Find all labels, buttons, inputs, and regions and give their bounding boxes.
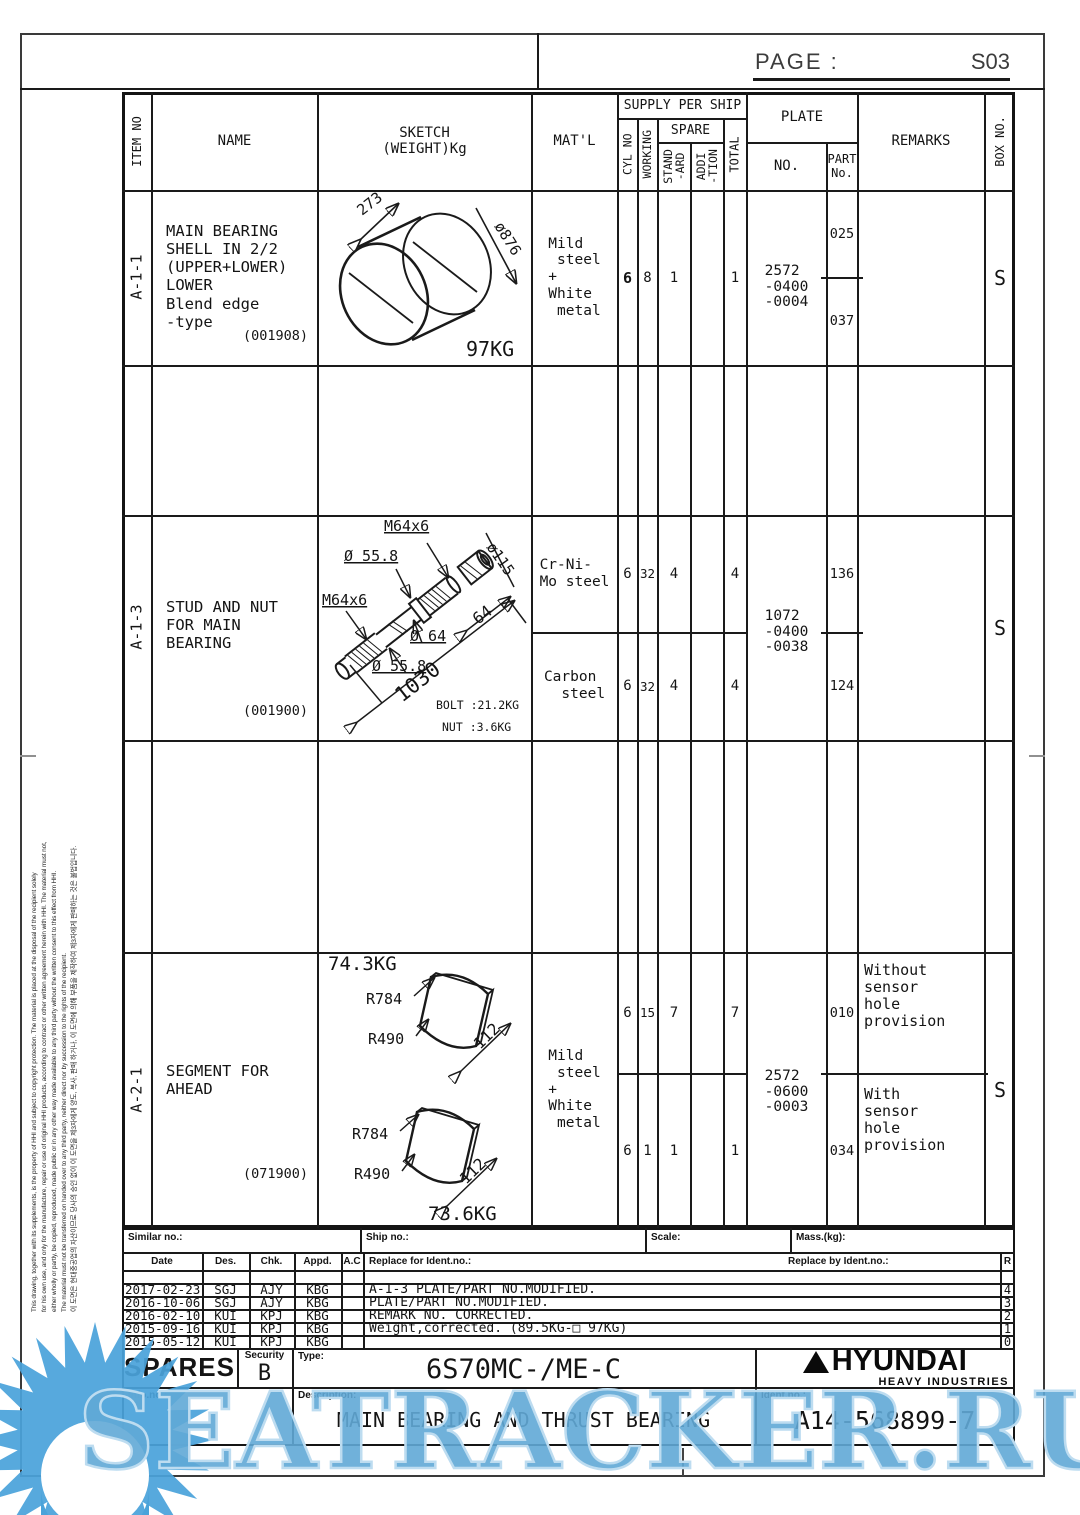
plate-no-a-1-1: 2572 -0400 -0004 [747, 200, 826, 375]
rev-row-r: 1 [1000, 1322, 1015, 1335]
svg-text:112: 112 [456, 1154, 490, 1188]
part-no-a-1-1-bottom: 037 [827, 277, 857, 365]
cyl-no-a-2-1-top: 6 [618, 952, 637, 1073]
plate-no-a-2-1: 2572 -0600 -0003 [747, 1005, 826, 1180]
cyl-no-a-1-3-top: 6 [618, 515, 637, 632]
part-no-a-2-1-top: 010 [827, 952, 857, 1073]
sketch-stud-and-nut: M64x6 Ø 55.8 M64x6 Ø 64 Ø 55.8 ø115 64 1… [318, 515, 531, 740]
working-a-2-1-bottom: 1 [638, 1073, 657, 1228]
standard-a-1-3-bottom: 4 [658, 632, 690, 740]
col-header-part-no: PART No. [827, 142, 857, 190]
remarks-a-2-1-bottom: With sensor hole provision [864, 1086, 982, 1196]
svg-text:Ø 55.8: Ø 55.8 [344, 547, 398, 565]
matl-a-1-3-bottom: Carbon steel [532, 632, 617, 740]
sketch-segment-for-ahead: 74.3KG R784 R490 112 R784 R490 112 73.6K… [318, 952, 531, 1228]
code-a-1-1: (001908) [196, 328, 308, 346]
mass-label: Mass.(kg): [796, 1232, 845, 1243]
similar-no-label: Similar no.: [128, 1232, 182, 1243]
col-header-plate: PLATE [747, 92, 857, 142]
part-no-a-1-3-bottom: 124 [827, 632, 857, 740]
col-header-working: WORKING [638, 118, 657, 190]
box-no-a-1-1: S [985, 190, 1015, 365]
grid-line [20, 88, 1045, 90]
part-no-a-1-3-top: 136 [827, 515, 857, 632]
svg-text:Ø 64: Ø 64 [410, 627, 446, 645]
plate-no-a-1-3: 1072 -0400 -0038 [747, 545, 826, 720]
total-a-2-1-top: 7 [724, 952, 746, 1073]
box-no-a-1-3: S [985, 515, 1015, 740]
name-a-2-1: SEGMENT FOR AHEAD [166, 1062, 316, 1106]
rev-header-replace-for: Replace for Ident.no.: [369, 1252, 669, 1270]
matl-a-1-3-top: Cr-Ni- Mo steel [532, 515, 617, 632]
svg-text:R784: R784 [352, 1125, 388, 1143]
grid-line [122, 365, 1015, 367]
total-a-2-1-bottom: 1 [724, 1073, 746, 1228]
page-number: S03 [920, 46, 1010, 78]
rev-row-r: 2 [1000, 1309, 1015, 1322]
grid-line [645, 1228, 647, 1252]
grid-line [537, 33, 539, 90]
svg-text:M64x6: M64x6 [322, 591, 367, 609]
rev-header-r: R [1000, 1252, 1015, 1270]
svg-text:ø876: ø876 [491, 219, 525, 259]
col-header-supply-per-ship: SUPPLY PER SHIP [618, 92, 747, 118]
part-no-a-1-1-top: 025 [827, 190, 857, 277]
sketch-main-bearing-shell: 273 ø876 97KG [318, 190, 531, 365]
svg-text:97KG: 97KG [466, 337, 514, 361]
matl-a-2-1: Mild steel + White metal [532, 952, 617, 1228]
total-a-1-1: 1 [724, 190, 746, 365]
grid-line [690, 142, 692, 1228]
col-header-addition: ADDI -TION [691, 142, 723, 190]
standard-a-1-1: 1 [658, 190, 690, 365]
col-header-spare: SPARE [658, 118, 723, 142]
svg-text:M64x6: M64x6 [384, 517, 429, 535]
svg-text:73.6KG: 73.6KG [428, 1203, 497, 1225]
col-header-item-no: ITEM NO [122, 92, 152, 190]
total-a-1-3-bottom: 4 [724, 632, 746, 740]
rev-row-text: Weight,corrected. (89.5KG-□ 97KG) [369, 1322, 989, 1335]
grid-line [360, 1228, 362, 1252]
grid-line [363, 1252, 365, 1348]
svg-text:BOLT :21.2KG: BOLT :21.2KG [436, 698, 519, 712]
col-header-matl: MAT'L [532, 92, 617, 190]
svg-text:74.3KG: 74.3KG [328, 953, 397, 975]
cyl-no-a-2-1-bottom: 6 [618, 1073, 637, 1228]
working-a-1-1: 8 [638, 190, 657, 365]
box-no-a-2-1: S [985, 952, 1015, 1228]
col-header-total: TOTAL [724, 118, 746, 190]
working-a-1-3-bottom: 32 [638, 632, 657, 740]
col-header-remarks: REMARKS [858, 92, 984, 190]
center-mark [1029, 755, 1045, 757]
col-header-cyl-no: CYL NO [618, 118, 637, 190]
standard-a-2-1-top: 7 [658, 952, 690, 1073]
svg-text:112: 112 [470, 1019, 504, 1053]
matl-a-1-1: Mild steel + White metal [532, 190, 617, 365]
rev-row-chk: KPJ [249, 1335, 294, 1348]
col-header-standard: STAND -ARD [658, 142, 690, 190]
copyright-disclaimer: This drawing, together with its suppleme… [30, 750, 80, 1312]
svg-text:R490: R490 [354, 1165, 390, 1183]
rev-row-r: 3 [1000, 1296, 1015, 1309]
grid-line [790, 1228, 792, 1252]
item-no-a-2-1: A-2-1 [122, 952, 152, 1228]
rev-header-appd: Appd. [294, 1252, 341, 1270]
code-a-2-1: (071900) [196, 1166, 308, 1184]
total-a-1-3-top: 4 [724, 515, 746, 632]
rev-row-appd: KBG [294, 1335, 341, 1348]
drawing-sheet: PAGE : S03 ITEM NO NAME SKETCH (WEIGHT)K… [0, 0, 1080, 1515]
scale-label: Scale: [651, 1232, 680, 1243]
rev-row-r: 4 [1000, 1283, 1015, 1296]
cyl-no-a-1-1: 6 [618, 190, 637, 365]
svg-text:R784: R784 [366, 990, 402, 1008]
item-no-a-1-3: A-1-3 [122, 515, 152, 740]
name-a-1-3: STUD AND NUT FOR MAIN BEARING [166, 598, 316, 660]
svg-text:64: 64 [469, 601, 496, 628]
code-a-1-3: (001900) [196, 703, 308, 721]
col-header-name: NAME [152, 92, 317, 190]
grid-line [122, 1270, 1015, 1272]
ship-no-label: Ship no.: [366, 1232, 409, 1243]
cyl-no-a-1-3-bottom: 6 [618, 632, 637, 740]
item-no-a-1-1: A-1-1 [122, 190, 152, 365]
remarks-a-2-1-top: Without sensor hole provision [864, 962, 982, 1067]
standard-a-1-3-top: 4 [658, 515, 690, 632]
standard-a-2-1-bottom: 1 [658, 1073, 690, 1228]
svg-text:273: 273 [353, 190, 385, 219]
col-header-box-no: BOX NO. [985, 92, 1015, 190]
watermark-text: SEATRACKER.RU [78, 1368, 1080, 1493]
rev-header-ac: A.C [341, 1252, 363, 1270]
working-a-1-3-top: 32 [638, 515, 657, 632]
rev-header-replace-by: Replace by Ident.no.: [788, 1252, 998, 1270]
svg-text:NUT :3.6KG: NUT :3.6KG [442, 720, 511, 734]
rev-header-date: Date [122, 1252, 202, 1270]
col-header-plate-no: NO. [747, 142, 826, 190]
working-a-2-1-top: 15 [638, 952, 657, 1073]
name-a-1-1: MAIN BEARING SHELL IN 2/2 (UPPER+LOWER) … [166, 222, 316, 334]
rev-header-chk: Chk. [249, 1252, 294, 1270]
page-underline [753, 78, 1010, 81]
grid-line [122, 740, 1015, 742]
grid-line [857, 92, 859, 1228]
rev-row-r: 0 [1000, 1335, 1015, 1348]
rev-header-des: Des. [202, 1252, 249, 1270]
svg-text:R490: R490 [368, 1030, 404, 1048]
col-header-sketch: SKETCH (WEIGHT)Kg [318, 92, 531, 190]
part-no-a-2-1-bottom: 034 [827, 1073, 857, 1228]
page-label: PAGE : [755, 46, 885, 78]
